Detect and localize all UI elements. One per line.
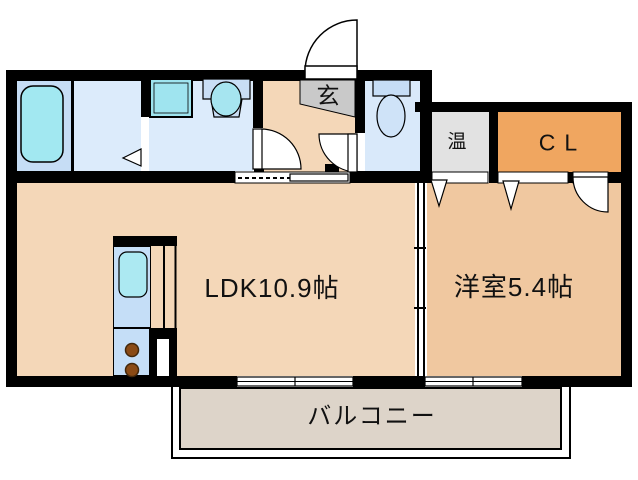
bedroom-label: 洋室5.4帖 — [454, 274, 574, 300]
bathtub — [21, 86, 63, 162]
stove-burner-1 — [126, 344, 139, 357]
stove-burner-2 — [126, 364, 139, 377]
balcony-label: バルコニー — [307, 405, 437, 429]
toilet-tank — [373, 80, 410, 96]
door-gap-washroom — [141, 117, 149, 171]
closet-label: CL — [530, 132, 586, 155]
toilet-bowl — [377, 95, 405, 137]
closet-door-swing — [573, 177, 608, 212]
vanity-basin — [211, 82, 241, 116]
entrance-label: 玄 — [317, 85, 340, 108]
window-bedroom — [425, 377, 522, 386]
entrance-door-leaf — [305, 66, 357, 79]
window-ldk — [237, 377, 353, 386]
toilet-door-leaf — [348, 134, 357, 172]
ldk-label: LDK10.9帖 — [204, 275, 339, 301]
sanitary-door-leaf — [253, 129, 262, 169]
entrance-door-swing — [305, 20, 357, 72]
sliding-door-panel — [290, 174, 348, 181]
door-wedge-washroom — [123, 149, 141, 166]
sanitary-door-swing — [261, 129, 301, 169]
door-wedge-closet — [503, 181, 519, 209]
washing-machine-pan — [150, 79, 192, 117]
kitchen-sink — [119, 252, 147, 297]
floor-plan: LDK10.9帖 洋室5.4帖 バルコニー 玄 温 CL — [0, 0, 638, 480]
water-heater-label: 温 — [447, 133, 466, 152]
door-wedge-water-heater — [431, 180, 447, 206]
